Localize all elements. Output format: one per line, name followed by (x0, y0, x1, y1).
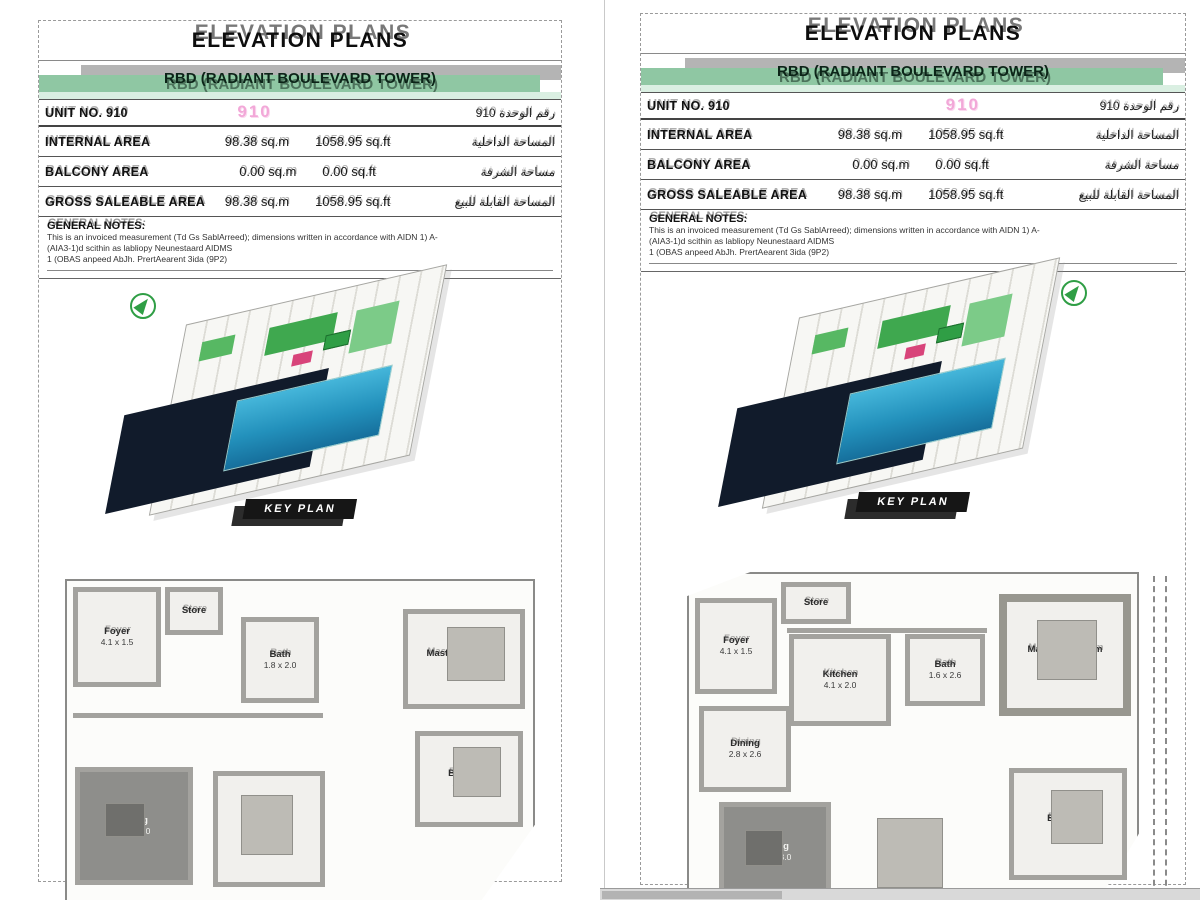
note-line: This is an invoiced measurement (Td Gs S… (649, 225, 1177, 236)
note-line: (AIA3-1)d scithin as labliopy Neunestaar… (47, 243, 553, 254)
gross-area-arabic: المساحة القابلة للبيع (395, 195, 555, 209)
table-row-internal-area: INTERNAL AREA 98.38 sq.m 1058.95 sq.ft ا… (641, 120, 1185, 150)
gross-area-sqft: 1058.95 sq.ft (928, 187, 1003, 202)
furniture-bed (1037, 620, 1097, 680)
room-dining: Dining 2.8 x 2.6 (699, 706, 791, 792)
page-title: ELEVATION PLANS (192, 29, 409, 53)
scrollbar-thumb[interactable] (602, 891, 782, 899)
notes-divider (47, 268, 553, 271)
gross-area-label: GROSS SALEABLE AREA (647, 188, 822, 202)
floor-plan-section: Foyer 4.1 x 1.5 Store Bath 1.8 x 2.0 Mas… (39, 579, 561, 900)
boundary-dashed-line (1153, 576, 1155, 900)
north-arrow-icon (1061, 280, 1087, 306)
internal-area-sqft: 1058.95 sq.ft (928, 127, 1003, 142)
notes-divider (649, 261, 1177, 264)
room-store: Store (781, 582, 851, 624)
unit-info-table: UNIT NO. 910 910 رقم الوحدة 910 INTERNAL… (39, 99, 561, 217)
floor-plan-section: Foyer 4.1 x 1.5 Store Kitchen 4.1 x 2.0 … (641, 572, 1185, 900)
key-plan-tag: KEY PLAN (856, 492, 971, 512)
key-plan-render: KEY PLAN (729, 280, 1097, 518)
table-row-gross-saleable-area: GROSS SALEABLE AREA 98.38 sq.m 1058.95 s… (39, 187, 561, 217)
internal-area-sqft: 1058.95 sq.ft (315, 134, 390, 149)
tower-subtitle-band: RBD (RADIANT BOULEVARD TOWER) (39, 61, 561, 99)
tower-name: RBD (RADIANT BOULEVARD TOWER) (641, 63, 1185, 80)
furniture-bed (1051, 790, 1103, 844)
subtitle-pale-bar (39, 92, 561, 99)
north-arrow-icon (130, 293, 156, 319)
unit-no-label: UNIT NO. 910 (45, 106, 220, 120)
balcony-area-sqft: 0.00 sq.ft (322, 164, 375, 179)
balcony-area-arabic: مساحة الشرفة (1019, 158, 1179, 172)
note-line: (AIA3-1)d scithin as labliopy Neunestaar… (649, 236, 1177, 247)
general-notes-heading: GENERAL NOTES: (649, 213, 1177, 225)
internal-area-label: INTERNAL AREA (647, 128, 822, 142)
panel-divider (604, 0, 605, 888)
internal-area-sqm: 98.38 sq.m (225, 134, 289, 149)
general-notes: GENERAL NOTES: This is an invoiced measu… (641, 210, 1185, 272)
balcony-area-arabic: مساحة الشرفة (395, 165, 555, 179)
table-row-internal-area: INTERNAL AREA 98.38 sq.m 1058.95 sq.ft ا… (39, 127, 561, 157)
unit-info-table: UNIT NO. 910 910 رقم الوحدة 910 INTERNAL… (641, 92, 1185, 210)
furniture-bed (453, 747, 501, 797)
key-plan-tag: KEY PLAN (243, 499, 358, 519)
room-store: Store (165, 587, 223, 635)
elevation-plan-sheet: ELEVATION PLANS RBD (RADIANT BOULEVARD T… (0, 0, 1200, 900)
unit-number-stamp: 910 (237, 102, 271, 122)
table-row-gross-saleable-area: GROSS SALEABLE AREA 98.38 sq.m 1058.95 s… (641, 180, 1185, 210)
internal-area-label: INTERNAL AREA (45, 135, 220, 149)
panel-title-box: ELEVATION PLANS (39, 21, 561, 61)
note-line: 1 (OBAS anpeed AbJh. PrertAearent 3ida (… (47, 254, 553, 265)
note-line: This is an invoiced measurement (Td Gs S… (47, 232, 553, 243)
gross-area-arabic: المساحة القابلة للبيع (1019, 188, 1179, 202)
balcony-area-sqm: 0.00 sq.m (852, 157, 909, 172)
note-line: 1 (OBAS anpeed AbJh. PrertAearent 3ida (… (649, 247, 1177, 258)
elevation-panel-right: ELEVATION PLANS RBD (RADIANT BOULEVARD T… (640, 13, 1186, 885)
room-bath: Bath 1.6 x 2.6 (905, 634, 985, 706)
room-foyer: Foyer 4.1 x 1.5 (73, 587, 161, 687)
balcony-area-label: BALCONY AREA (45, 165, 220, 179)
balcony-area-label: BALCONY AREA (647, 158, 822, 172)
general-notes: GENERAL NOTES: This is an invoiced measu… (39, 217, 561, 279)
furniture-bed (447, 627, 505, 681)
key-plan-render: KEY PLAN (116, 287, 484, 525)
floor-plan-drawing: Foyer 4.1 x 1.5 Store Bath 1.8 x 2.0 Mas… (65, 579, 535, 900)
room-kitchen: Kitchen 4.1 x 2.0 (789, 634, 891, 726)
balcony-area-sqft: 0.00 sq.ft (935, 157, 988, 172)
tower-name: RBD (RADIANT BOULEVARD TOWER) (39, 70, 561, 87)
tower-subtitle-band: RBD (RADIANT BOULEVARD TOWER) (641, 54, 1185, 92)
table-row-unit-no: UNIT NO. 910 910 رقم الوحدة 910 (39, 100, 561, 127)
furniture-bed (877, 818, 943, 888)
room-bath: Bath 1.8 x 2.0 (241, 617, 319, 703)
elevation-panel-left: ELEVATION PLANS RBD (RADIANT BOULEVARD T… (38, 20, 562, 882)
gross-area-sqm: 98.38 sq.m (225, 194, 289, 209)
gross-area-label: GROSS SALEABLE AREA (45, 195, 220, 209)
table-row-balcony-area: BALCONY AREA 0.00 sq.m 0.00 sq.ft مساحة … (641, 150, 1185, 180)
horizontal-scrollbar[interactable] (600, 888, 1200, 900)
table-row-balcony-area: BALCONY AREA 0.00 sq.m 0.00 sq.ft مساحة … (39, 157, 561, 187)
balcony-area-sqm: 0.00 sq.m (239, 164, 296, 179)
key-plan-section: KEY PLAN (641, 280, 1185, 566)
unit-no-arabic: رقم الوحدة 910 (395, 106, 555, 120)
unit-number-stamp: 910 (946, 95, 980, 115)
internal-area-arabic: المساحة الداخلية (395, 135, 555, 149)
unit-no-label: UNIT NO. 910 (647, 99, 822, 113)
key-plan-section: KEY PLAN (39, 287, 561, 573)
general-notes-heading: GENERAL NOTES: (47, 220, 553, 232)
table-row-unit-no: UNIT NO. 910 910 رقم الوحدة 910 (641, 93, 1185, 120)
internal-area-arabic: المساحة الداخلية (1019, 128, 1179, 142)
panel-title-box: ELEVATION PLANS (641, 14, 1185, 54)
furniture-table (745, 830, 783, 866)
subtitle-pale-bar (641, 85, 1185, 92)
internal-area-sqm: 98.38 sq.m (838, 127, 902, 142)
gross-area-sqft: 1058.95 sq.ft (315, 194, 390, 209)
room-foyer: Foyer 4.1 x 1.5 (695, 598, 777, 694)
boundary-dashed-line (1165, 576, 1167, 900)
furniture-bed (241, 795, 293, 855)
gross-area-sqm: 98.38 sq.m (838, 187, 902, 202)
furniture-table (105, 803, 145, 837)
floor-plan-drawing: Foyer 4.1 x 1.5 Store Kitchen 4.1 x 2.0 … (687, 572, 1139, 900)
interior-wall (787, 628, 987, 633)
unit-no-arabic: رقم الوحدة 910 (1019, 99, 1179, 113)
interior-wall (73, 713, 323, 718)
page-title: ELEVATION PLANS (805, 22, 1022, 46)
